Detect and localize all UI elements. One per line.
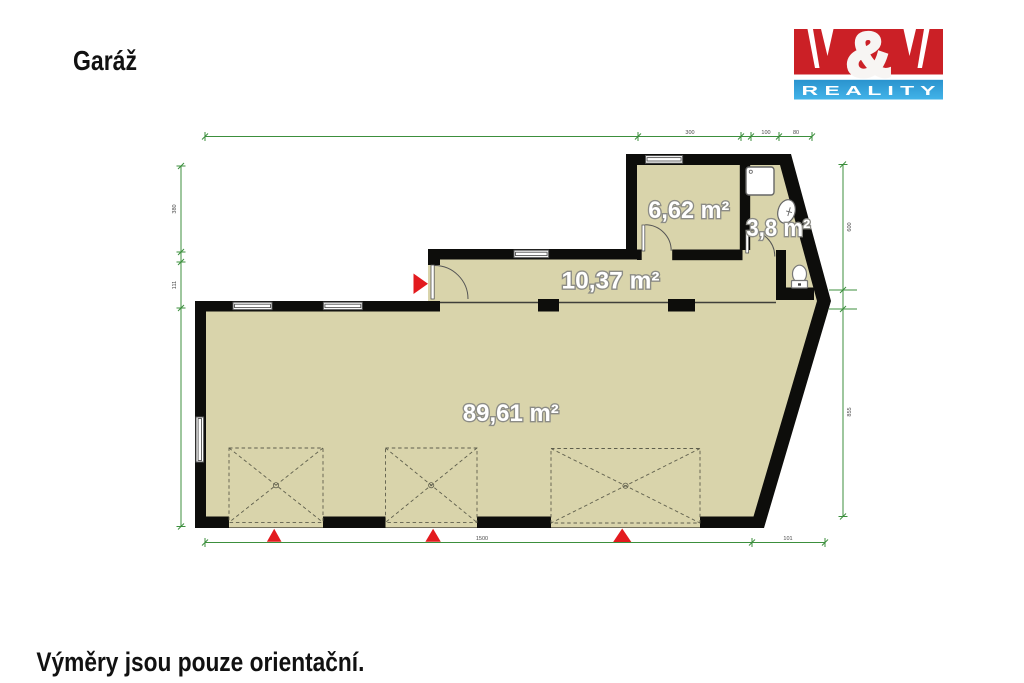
- svg-text:&: &: [846, 21, 891, 90]
- svg-text:600: 600: [847, 222, 853, 231]
- svg-text:1500: 1500: [476, 536, 488, 542]
- svg-text:Garáž: Garáž: [73, 45, 137, 76]
- svg-text:300: 300: [685, 130, 694, 136]
- svg-text:80: 80: [793, 130, 799, 136]
- svg-text:100: 100: [761, 130, 770, 136]
- svg-text:10,37 m²: 10,37 m²: [562, 268, 660, 295]
- svg-text:111: 111: [172, 281, 178, 289]
- svg-text:380: 380: [172, 204, 178, 213]
- svg-text:3,8 m²: 3,8 m²: [746, 215, 810, 242]
- svg-text:855: 855: [847, 407, 853, 416]
- svg-text:R E A L I T Y: R E A L I T Y: [802, 83, 937, 98]
- svg-text:Výměry jsou pouze orientační.: Výměry jsou pouze orientační.: [36, 647, 364, 677]
- svg-text:6,62 m²: 6,62 m²: [648, 197, 729, 224]
- svg-text:89,61 m²: 89,61 m²: [463, 400, 559, 427]
- svg-text:101: 101: [783, 536, 792, 542]
